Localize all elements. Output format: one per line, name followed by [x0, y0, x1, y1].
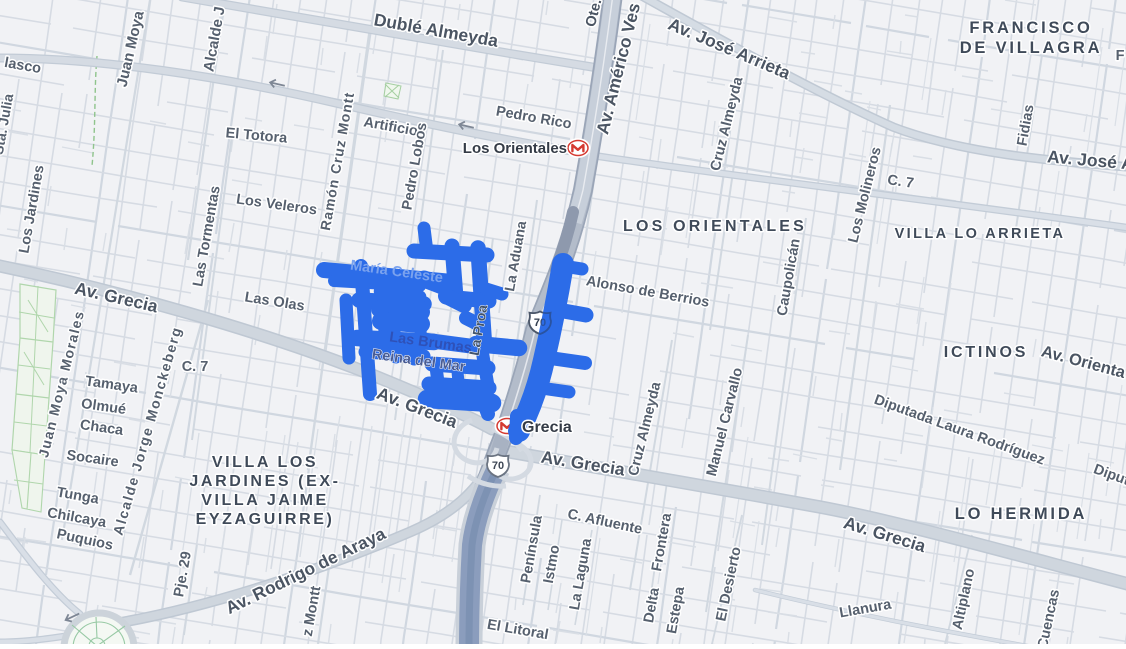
svg-text:LO HERMIDA: LO HERMIDA [955, 505, 1088, 523]
svg-text:Los Orientales: Los Orientales [463, 140, 567, 157]
svg-text:Grecia: Grecia [522, 419, 572, 436]
svg-text:VILLA LOS: VILLA LOS [212, 454, 318, 471]
svg-text:DE VILLAGRA: DE VILLAGRA [960, 39, 1103, 57]
svg-text:VILLA LO ARRIETA: VILLA LO ARRIETA [895, 226, 1066, 242]
svg-text:VILLA JAIME: VILLA JAIME [201, 492, 329, 509]
svg-text:FRANCISCO: FRANCISCO [969, 19, 1092, 37]
svg-text:LOS ORIENTALES: LOS ORIENTALES [623, 218, 807, 235]
svg-text:70: 70 [492, 460, 504, 472]
svg-text:70: 70 [534, 317, 546, 329]
svg-text:JARDINES (EX-: JARDINES (EX- [189, 473, 340, 490]
svg-text:ICTINOS: ICTINOS [944, 344, 1029, 361]
svg-text:F: F [1116, 48, 1125, 64]
svg-text:EYZAGUIRRE): EYZAGUIRRE) [196, 511, 335, 528]
svg-text:C. 7: C. 7 [182, 359, 209, 375]
